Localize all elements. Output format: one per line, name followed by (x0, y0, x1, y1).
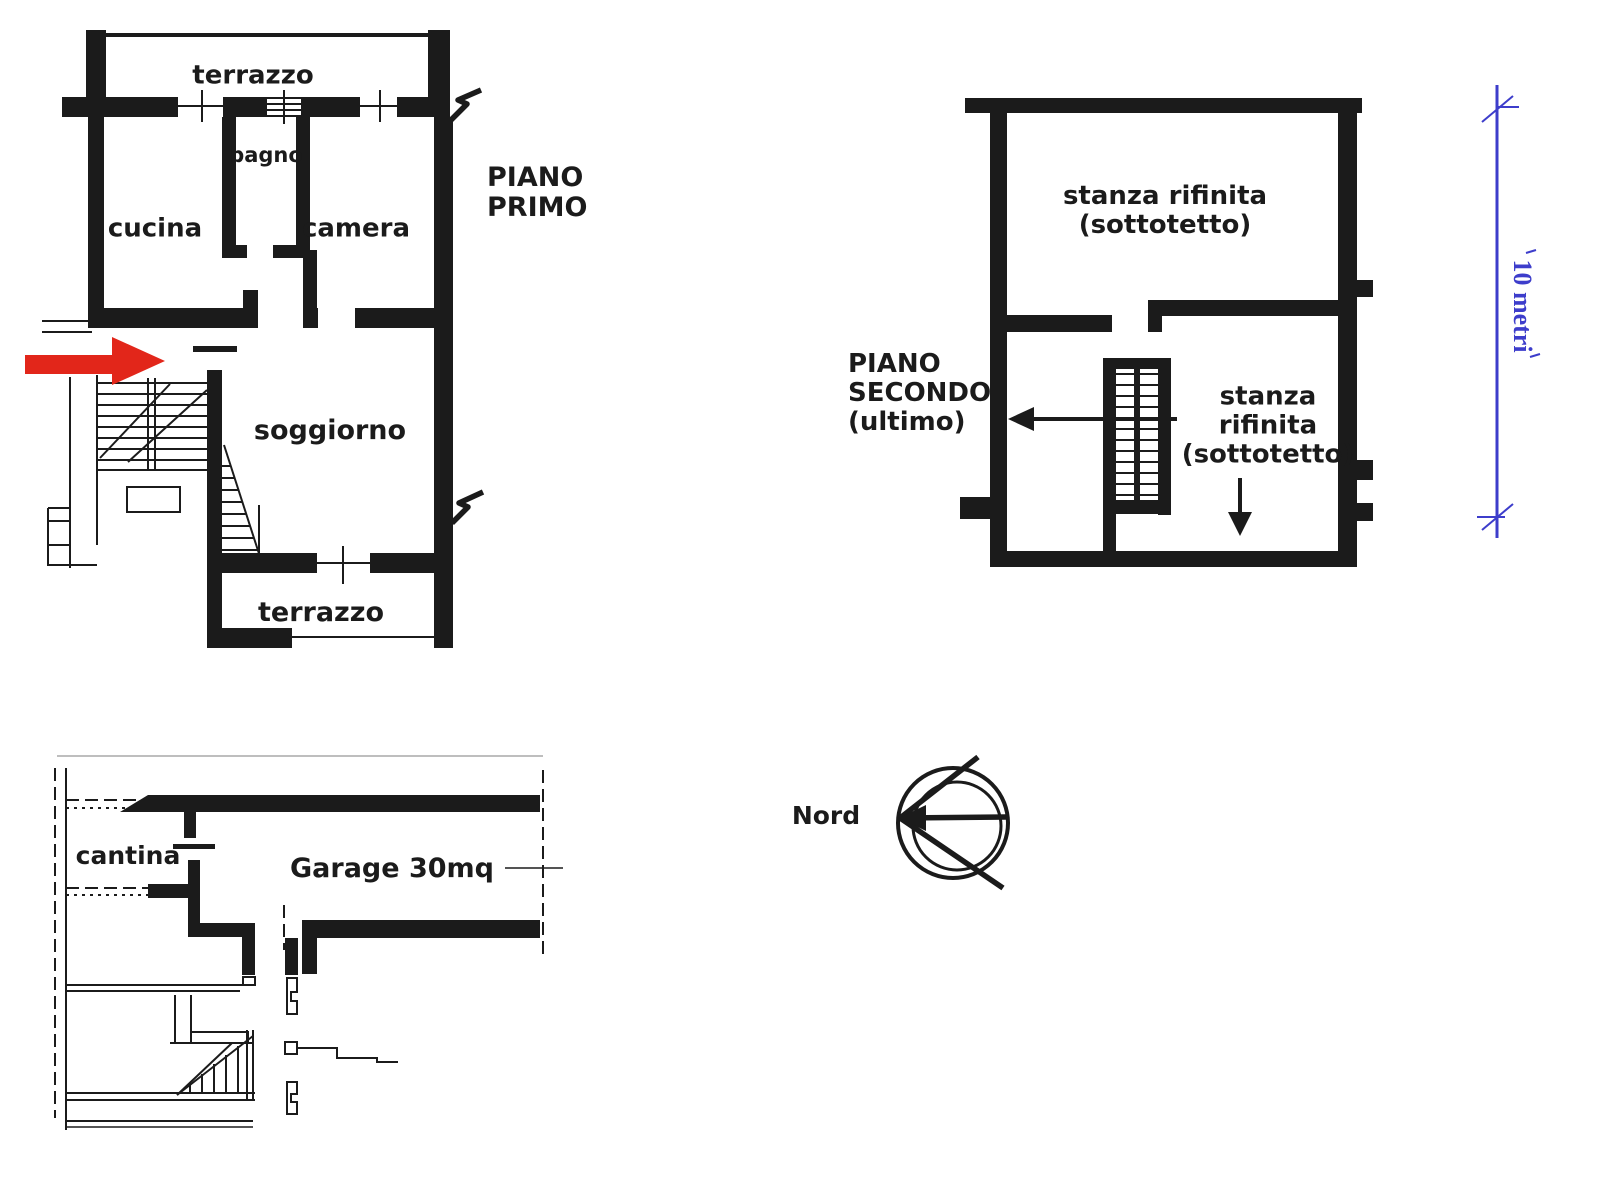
room-label-camera: camera (302, 214, 410, 243)
room-label-cucina: cucina (108, 214, 202, 243)
stair-direction-arrow-left-icon (1008, 407, 1177, 431)
staircase-second-floor (1103, 358, 1171, 567)
staircase-first-floor (48, 370, 262, 568)
plan-title-piano-secondo: PIANO SECONDO (ultimo) (848, 350, 991, 437)
room-label-soggiorno: soggiorno (254, 416, 406, 446)
plan-drawing (0, 0, 1600, 1200)
room-label-bagno: bagno (229, 144, 303, 168)
room-label-terrazzo-top: terrazzo (192, 61, 313, 90)
piano-primo-plan (25, 30, 483, 648)
room-label-terrazzo-bottom: terrazzo (258, 598, 384, 628)
stair-direction-arrow-down-icon (1228, 478, 1252, 536)
compass-label-nord: Nord (792, 802, 860, 830)
basement-plan (55, 756, 563, 1130)
scale-bar-label: 10 metri (1507, 259, 1537, 352)
room-label-garage: Garage 30mq (290, 854, 494, 884)
room-label-stanza-rifinita-top: stanza rifinita (sottotetto) (1063, 182, 1267, 240)
north-compass-icon (898, 757, 1008, 888)
entrance-arrow-icon (25, 337, 165, 385)
floor-plan-sheet: terrazzo bagno cucina camera PIANO PRIMO… (0, 0, 1600, 1200)
room-label-stanza-rifinita-right: stanza rifinita (sottotetto) (1182, 382, 1355, 469)
staircase-basement (65, 977, 255, 1127)
room-label-cantina: cantina (76, 842, 181, 870)
piano-secondo-plan (960, 98, 1373, 567)
plan-title-piano-primo: PIANO PRIMO (487, 163, 587, 223)
